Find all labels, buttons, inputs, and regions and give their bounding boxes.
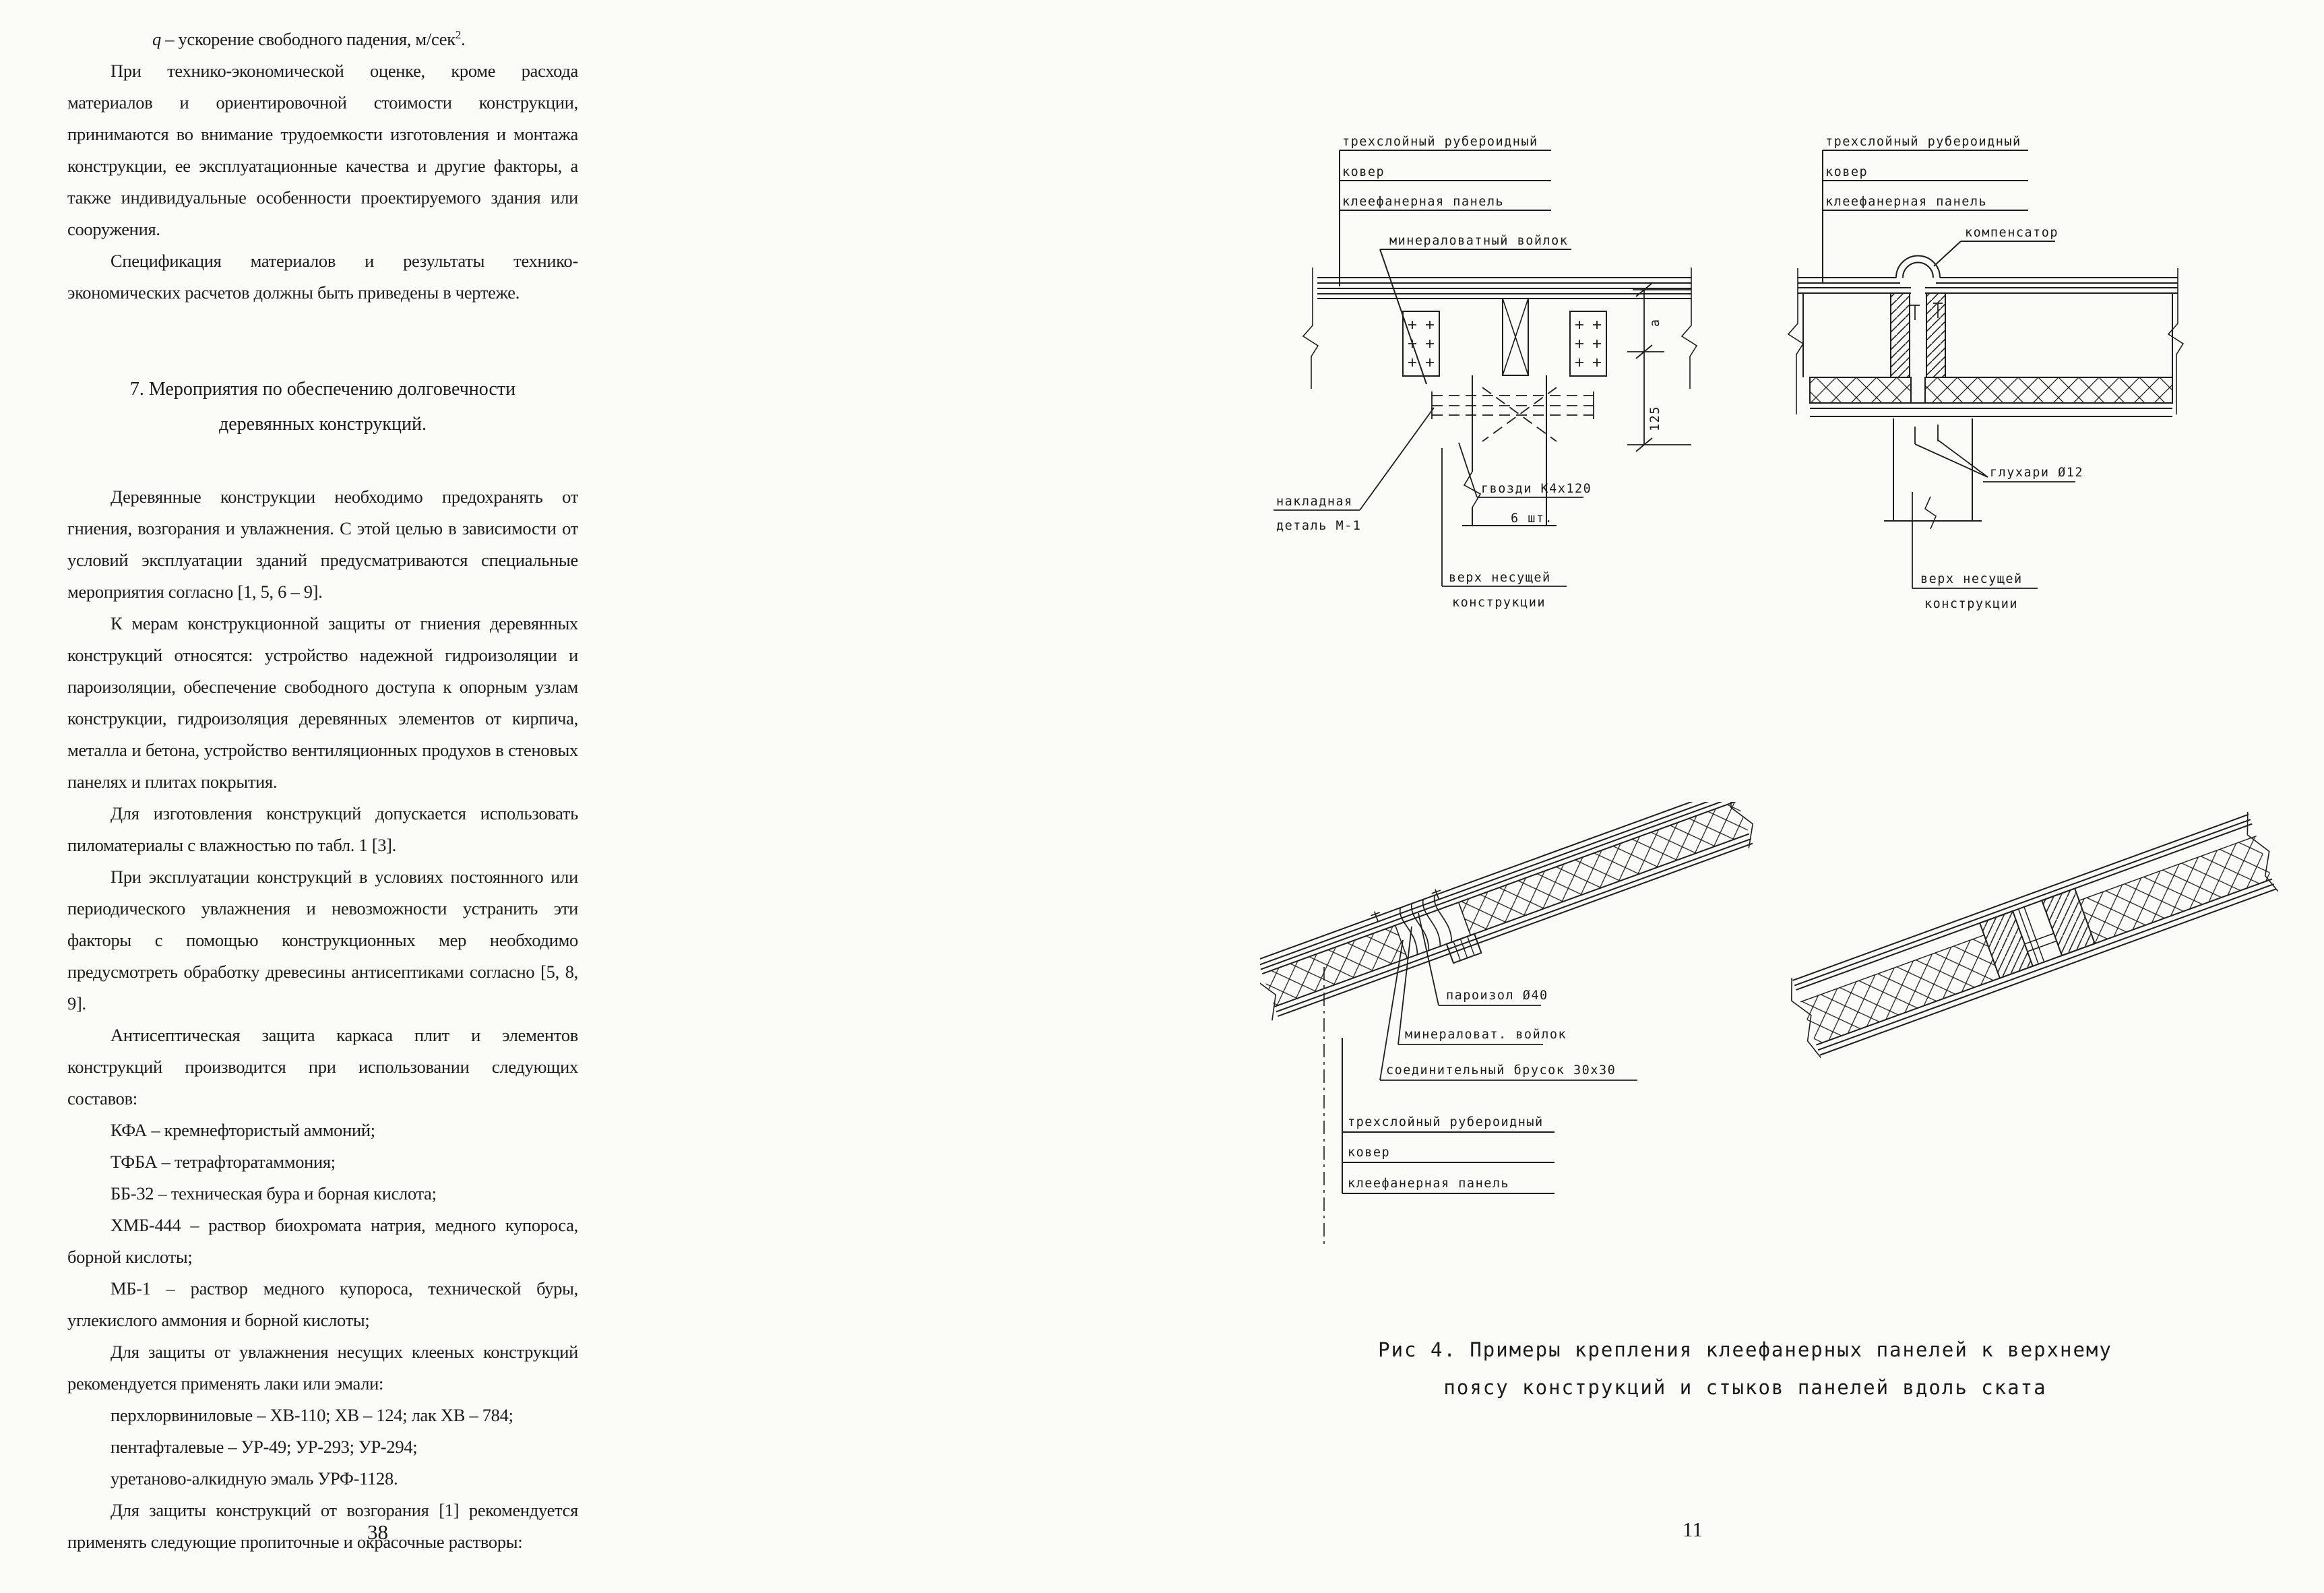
page-number-right: 11 (1683, 1518, 1703, 1542)
fig1-label-roof-carpet-1: трехслойный рубероидный (1342, 135, 1538, 149)
figure-caption-line1: Рис 4. Примеры крепления клеефанерных па… (1354, 1331, 2136, 1369)
fig1-label-plate-line2: деталь М-1 (1276, 519, 1361, 533)
fig3-label-mineral-felt: минераловат. войлок (1405, 1028, 1567, 1042)
figure-sloped-joint-labeled: пароизол Ø40 минераловат. войлок соедини… (1260, 802, 1806, 1274)
paragraph: При технико-экономической оценке, кроме … (67, 55, 578, 245)
fig2-label-roof-carpet-2: ковер (1825, 165, 1868, 179)
paragraph: Для защиты конструкций от возгорания [1]… (67, 1495, 578, 1558)
figure-panel-attachment-nailed: трехслойный рубероидный ковер клеефанерн… (1260, 125, 1799, 617)
fig1-label-nails-line1: гвозди К4х120 (1481, 482, 1592, 496)
list-item-composition: КФА – кремнефтористый аммоний; (67, 1115, 578, 1146)
variable-q: q (152, 29, 161, 49)
fig2-label-bearing-top-line1: верх несущей (1920, 572, 2023, 586)
figure-sloped-joint-plain (1765, 782, 2318, 1159)
fig1-label-mineral-felt: минераловатный войлок (1389, 234, 1568, 248)
fig3-label-poroizol: пароизол Ø40 (1446, 989, 1548, 1003)
fig1-dim-a: а (1648, 318, 1662, 327)
paragraph: Деревянные конструкции необходимо предох… (67, 481, 578, 608)
fig2-label-roof-carpet-1: трехслойный рубероидный (1825, 135, 2021, 149)
fig2-label-lag-screws: глухари Ø12 (1990, 466, 2083, 480)
fig3-label-roof-carpet-1: трехслойный рубероидный (1348, 1115, 1544, 1129)
section-heading: 7. Мероприятия по обеспечению долговечно… (81, 372, 565, 442)
fig1-label-roof-carpet-2: ковер (1342, 165, 1385, 179)
paragraph: Антисептическая защита каркаса плит и эл… (67, 1020, 578, 1115)
page-number-left: 38 (367, 1520, 388, 1544)
q-period: . (461, 29, 465, 49)
list-item-composition: МБ-1 – раствор медного купороса, техниче… (67, 1273, 578, 1336)
fig2-label-compensator: компенсатор (1965, 226, 2059, 240)
list-item-composition: ХМБ-444 – раствор биохромата натрия, мед… (67, 1210, 578, 1273)
fig2-label-bearing-top-line2: конструкции (1924, 597, 2018, 611)
list-item-enamel: уретаново-алкидную эмаль УРФ-1128. (67, 1463, 578, 1495)
q-superscript: 2 (456, 28, 461, 41)
formula-definition-line: q – ускорение свободного падения, м/сек2… (67, 19, 578, 55)
list-item-enamel: пентафталевые – УР-49; УР-293; УР-294; (67, 1431, 578, 1463)
fig3-label-plywood-panel: клеефанерная панель (1348, 1177, 1509, 1191)
fig1-dim-125: 125 (1648, 406, 1662, 431)
list-item-composition: ББ-32 – техническая бура и борная кислот… (67, 1178, 578, 1210)
paragraph: Для изготовления конструкций допускается… (67, 798, 578, 861)
paragraph: Для защиты от увлажнения несущих клееных… (67, 1336, 578, 1400)
fig2-label-plywood-panel: клеефанерная панель (1825, 195, 1987, 209)
q-definition-text: – ускорение свободного падения, м/сек (161, 29, 456, 49)
fig1-label-bearing-top-line1: верх несущей (1449, 571, 1551, 585)
scanned-book-spread: q – ускорение свободного падения, м/сек2… (0, 0, 2324, 1593)
figure-caption-line2: поясу конструкций и стыков панелей вдоль… (1354, 1369, 2136, 1406)
fig1-label-nails-line2: 6 шт. (1511, 511, 1553, 526)
fig1-label-plywood-panel: клеефанерная панель (1342, 195, 1504, 209)
figure-panel-joint-compensator: трехслойный рубероидный ковер клеефанерн… (1765, 125, 2319, 617)
paragraph: Спецификация материалов и результаты тех… (67, 245, 578, 309)
left-page-text-column: q – ускорение свободного падения, м/сек2… (67, 19, 578, 1558)
fig3-label-roof-carpet-2: ковер (1348, 1146, 1390, 1160)
figure-caption: Рис 4. Примеры крепления клеефанерных па… (1354, 1331, 2136, 1406)
fig2-linework (1788, 150, 2183, 588)
fig4-sloped-band (1784, 809, 2283, 1060)
fig1-label-plate-line1: накладная (1276, 495, 1353, 509)
fig3-label-connecting-bar: соединительный брусок 30х30 (1386, 1063, 1616, 1077)
paragraph: К мерам конструкционной защиты от гниени… (67, 608, 578, 798)
paragraph: При эксплуатации конструкций в условиях … (67, 861, 578, 1020)
list-item-enamel: перхлорвиниловые – ХВ-110; ХВ – 124; лак… (67, 1400, 578, 1431)
list-item-composition: ТФБА – тетрафторатаммония; (67, 1146, 578, 1178)
fig1-label-bearing-top-line2: конструкции (1452, 596, 1546, 610)
